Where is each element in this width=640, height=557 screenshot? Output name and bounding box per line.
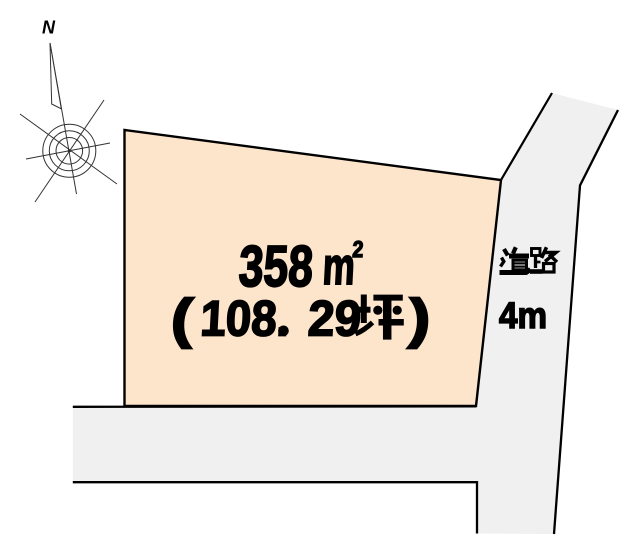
svg-text:108.: 108.	[199, 291, 291, 347]
svg-text:2: 2	[352, 236, 364, 262]
svg-text:4m: 4m	[499, 295, 547, 336]
svg-text:N: N	[42, 18, 56, 38]
svg-text:(: (	[170, 289, 194, 349]
svg-text:358: 358	[237, 234, 314, 299]
svg-text:29: 29	[307, 291, 363, 347]
svg-text:m: m	[321, 238, 356, 296]
svg-text:): )	[408, 289, 432, 349]
